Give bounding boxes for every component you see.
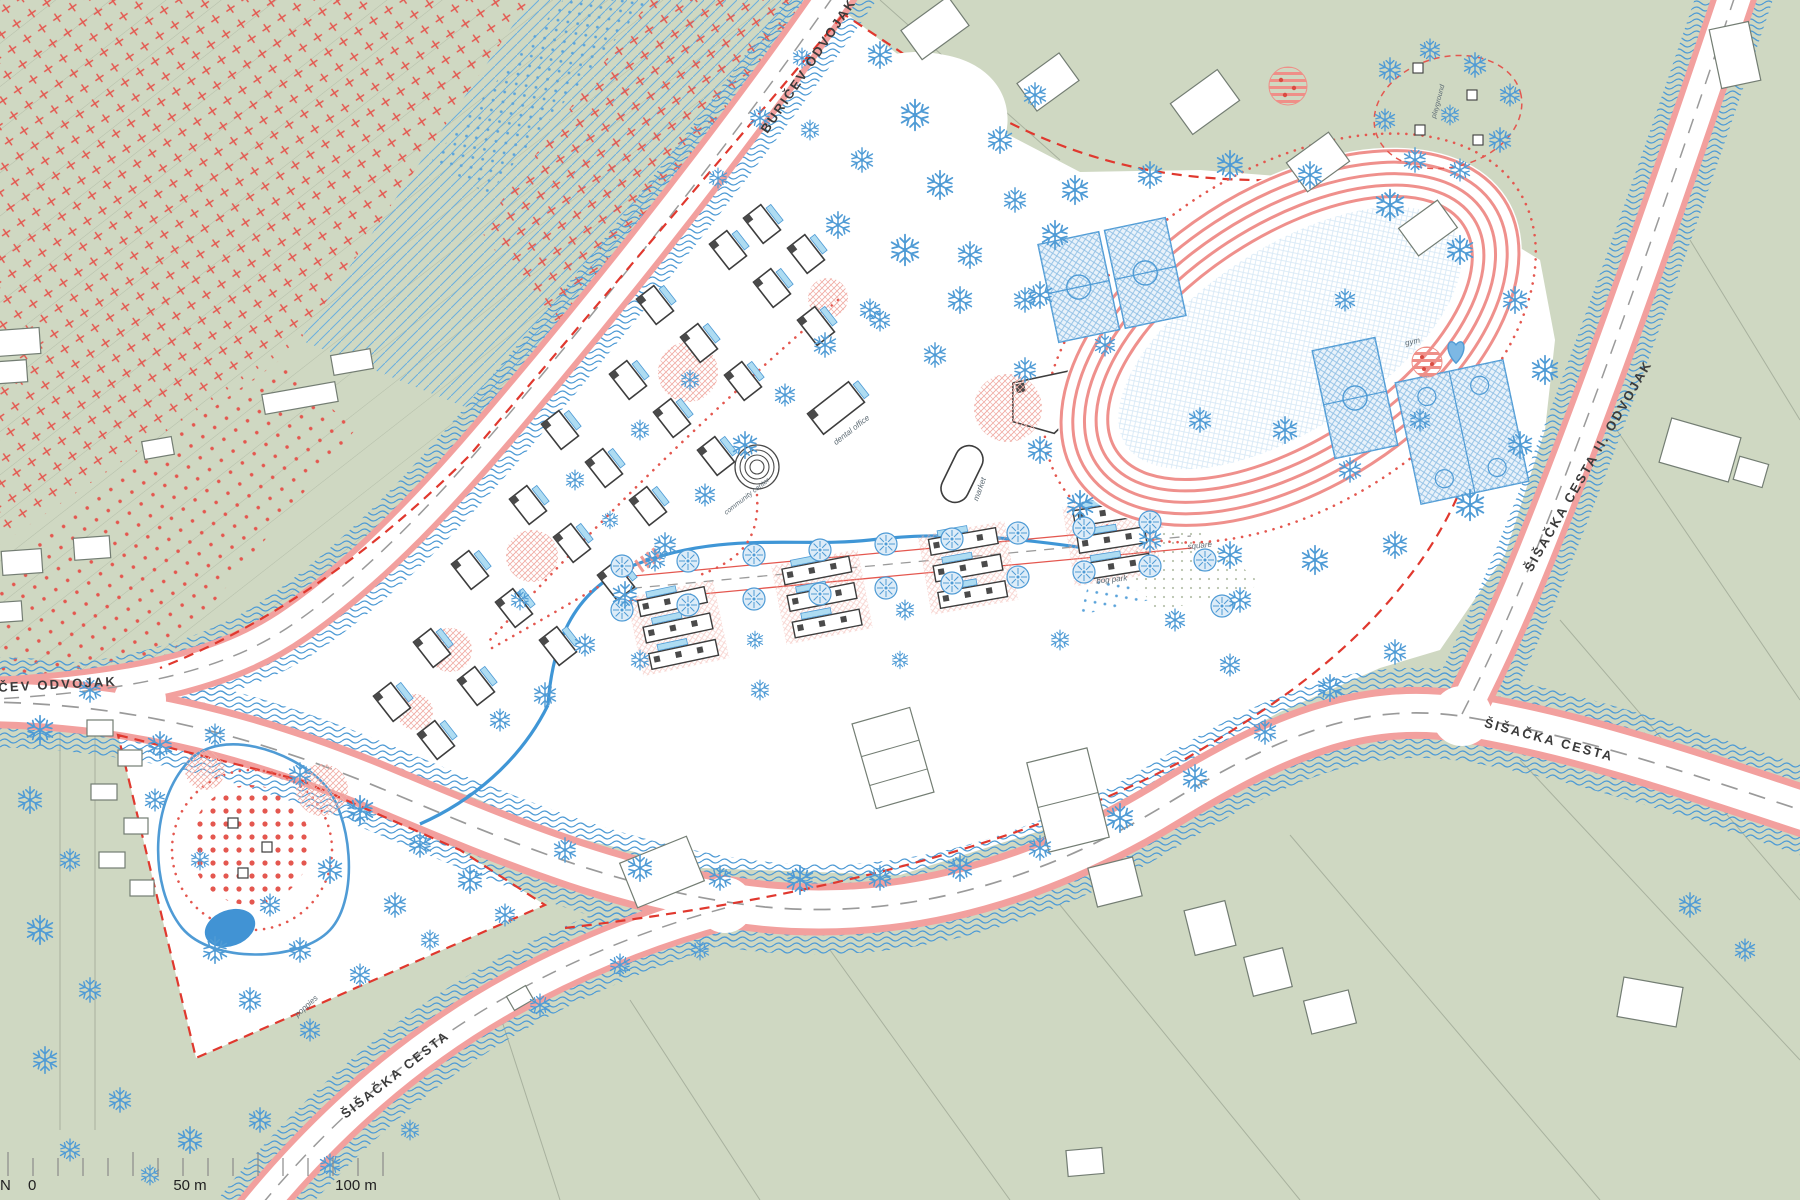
site-plan-svg: poppies community center dental bbox=[0, 0, 1800, 1200]
scale-label-zero: 0 bbox=[28, 1177, 36, 1194]
scale-label-fifty: 50 m bbox=[173, 1177, 206, 1194]
site-plan-map: poppies community center dental bbox=[0, 0, 1800, 1200]
north-indicator: N bbox=[0, 1177, 11, 1194]
north-striped-mound bbox=[1269, 67, 1307, 105]
poppies-playground bbox=[190, 785, 310, 905]
scale-label-hundred: 100 m bbox=[335, 1177, 377, 1194]
seating-mound bbox=[1412, 347, 1442, 377]
